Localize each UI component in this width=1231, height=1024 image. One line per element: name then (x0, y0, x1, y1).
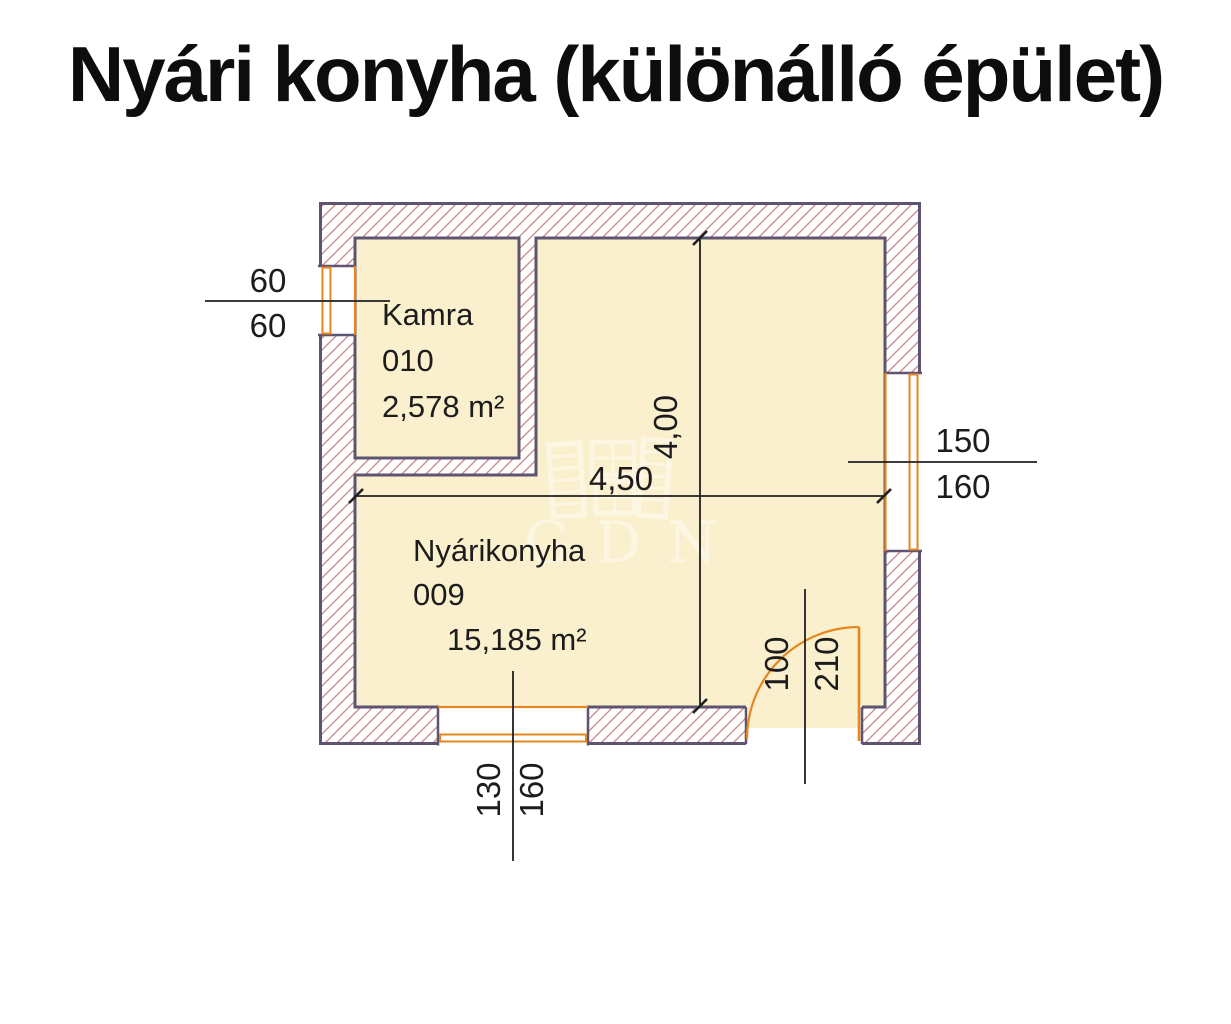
dim-door-right: 210 (808, 636, 845, 691)
dim-left-window-bottom: 60 (250, 307, 287, 344)
kamra-number-label: 010 (382, 343, 434, 378)
dim-right-window-top: 150 (935, 422, 990, 459)
room-kamra (355, 238, 519, 458)
dim-door-left: 100 (758, 636, 795, 691)
nyarikonyha-area-label: 15,185 m² (447, 622, 587, 657)
dim-room-width-label: 4,50 (589, 460, 653, 497)
kamra-area-label: 2,578 m² (382, 389, 504, 424)
dim-bottom-window-right: 160 (513, 762, 550, 817)
floor-plan-page: Nyári konyha (különálló épület) (0, 0, 1231, 1024)
floor-plan-drawing: GDN (0, 0, 1231, 1024)
dim-bottom-window-left: 130 (470, 762, 507, 817)
dim-left-window-top: 60 (250, 262, 287, 299)
kamra-name-label: Kamra (382, 297, 474, 332)
dim-room-height-label: 4,00 (647, 395, 684, 459)
dim-right-window-bottom: 160 (935, 468, 990, 505)
nyarikonyha-number-label: 009 (413, 577, 465, 612)
nyarikonyha-name-label: Nyárikonyha (413, 533, 586, 568)
